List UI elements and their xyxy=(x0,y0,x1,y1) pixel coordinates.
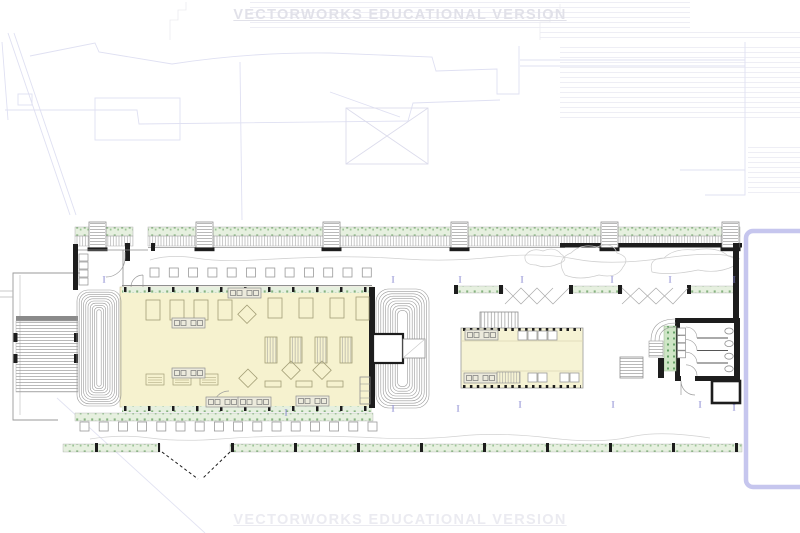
context-hatch-top xyxy=(250,0,690,29)
viewport-frame xyxy=(746,231,800,487)
hatched-table xyxy=(290,337,302,363)
toilet xyxy=(686,340,733,351)
shelf-unit xyxy=(678,343,686,350)
walkway-south-wall xyxy=(560,243,742,248)
zigzag-truss xyxy=(505,288,569,304)
shelf-unit xyxy=(678,351,686,358)
door-swing xyxy=(681,381,695,395)
elevator-core xyxy=(373,334,403,363)
east-wall xyxy=(733,243,739,320)
context-hatch-east xyxy=(748,146,800,196)
service-room xyxy=(712,381,740,403)
ground-line xyxy=(150,254,740,262)
stair-east xyxy=(620,357,643,378)
stair-steps xyxy=(649,341,663,357)
walkway-stair xyxy=(195,222,215,251)
ramp-terraces-west xyxy=(77,290,121,406)
main-hall xyxy=(120,286,375,413)
colonnade-columns-north xyxy=(150,268,371,277)
planter xyxy=(664,326,676,371)
drawing-canvas: VECTORWORKS EDUCATIONAL VERSION VECTORWO… xyxy=(0,0,800,533)
cafe-pavilion xyxy=(461,312,583,388)
ground-line xyxy=(90,434,710,441)
entry-path-dashed xyxy=(162,452,230,479)
grand-stair-west xyxy=(0,273,80,420)
walkway-stair xyxy=(450,222,470,251)
context-cross-building xyxy=(346,108,428,164)
pavilion-counter xyxy=(465,330,498,340)
shelf-unit xyxy=(79,254,88,261)
vestibule-northwest xyxy=(73,243,155,290)
hatched-table xyxy=(265,337,277,363)
restroom-block xyxy=(620,243,740,403)
toilet-stalls xyxy=(686,327,733,376)
walkway-stair xyxy=(600,222,620,251)
hatched-table xyxy=(315,337,327,363)
toilet xyxy=(686,352,733,363)
shelf-unit xyxy=(79,270,88,277)
site-plan-drawing xyxy=(0,0,800,533)
door-swing xyxy=(106,252,125,277)
south-facade-planting xyxy=(75,413,373,421)
toilet xyxy=(686,365,733,376)
zigzag-truss xyxy=(622,288,688,304)
toilet xyxy=(686,327,733,338)
walkway-stair xyxy=(88,222,108,251)
walkway-stair xyxy=(322,222,342,251)
ramp-terraces-east xyxy=(373,289,429,408)
site-context xyxy=(2,0,800,533)
shelf-unit xyxy=(79,262,88,269)
south-hedge xyxy=(63,434,742,479)
pavilion-stair xyxy=(480,312,518,329)
shelf-unit xyxy=(678,328,686,335)
context-hatch-terraces xyxy=(560,44,800,118)
shelf-unit xyxy=(678,336,686,343)
hatched-table xyxy=(340,337,352,363)
shelf-unit xyxy=(79,278,88,285)
colonnade-columns-south xyxy=(80,422,377,431)
core-landing xyxy=(403,339,425,358)
context-hatch-top-right xyxy=(540,28,800,42)
canopy-trusses xyxy=(454,285,738,304)
roof-walkway xyxy=(75,222,742,262)
